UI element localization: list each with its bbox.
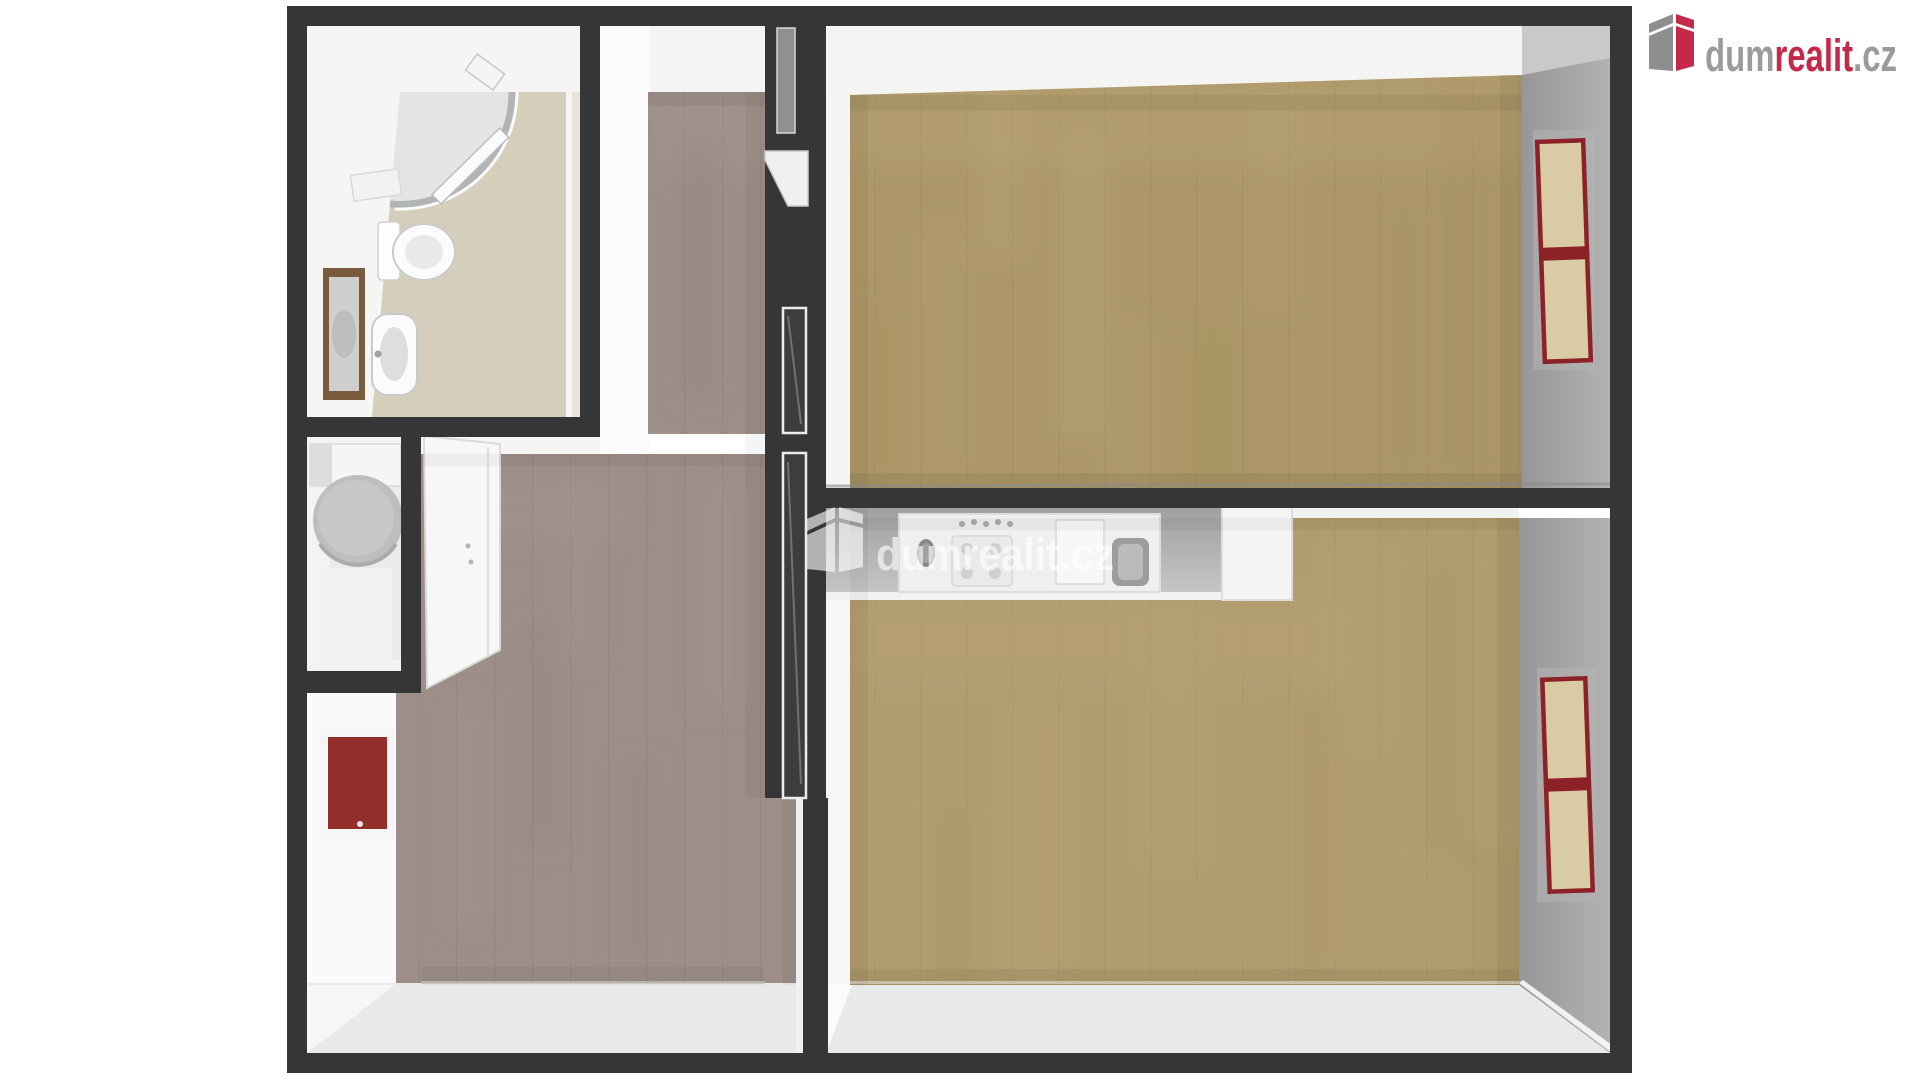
svg-text:dumrealit.cz: dumrealit.cz [1705, 30, 1897, 81]
svg-text:dumrealit.cz: dumrealit.cz [876, 529, 1114, 580]
